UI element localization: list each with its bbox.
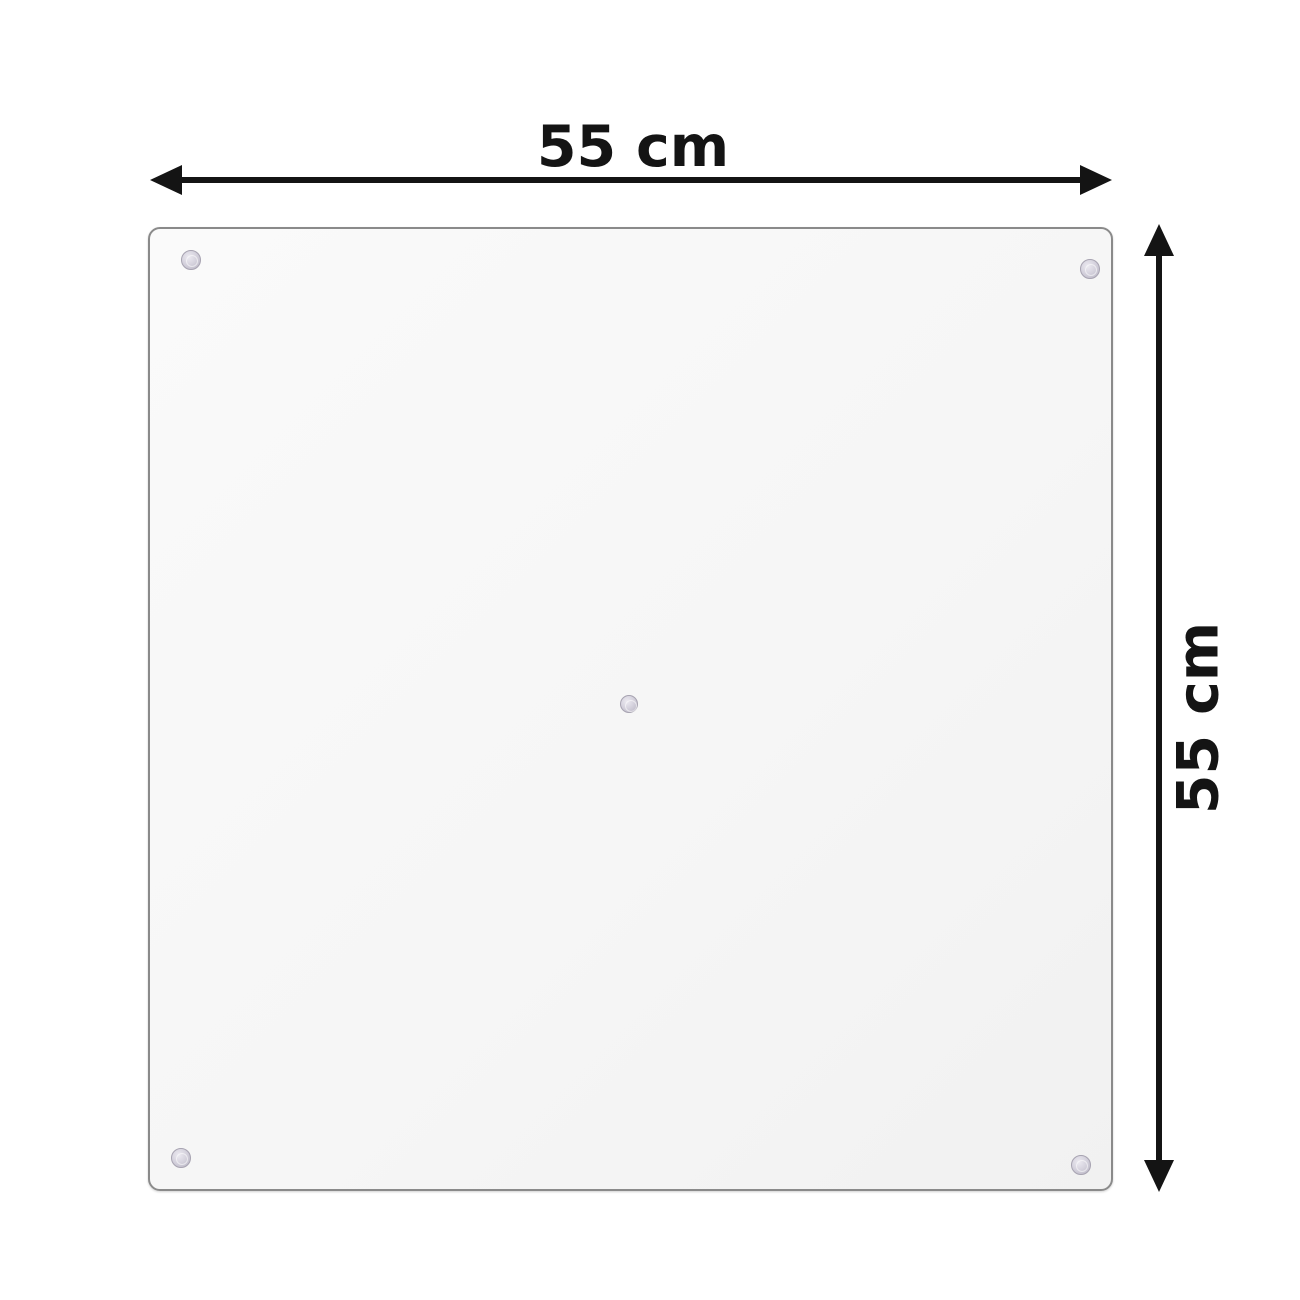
glass-panel <box>148 227 1113 1191</box>
suction-cup-top-left <box>181 250 201 270</box>
suction-cup-bottom-right <box>1071 1155 1091 1175</box>
suction-cup-bottom-left <box>171 1148 191 1168</box>
product-dimension-diagram: 55 cm 55 cm <box>0 0 1300 1300</box>
suction-cup-center <box>620 695 638 713</box>
height-dimension-label: 55 cm <box>1171 622 1228 814</box>
width-dimension-label: 55 cm <box>537 119 729 176</box>
suction-cup-top-right <box>1080 259 1100 279</box>
